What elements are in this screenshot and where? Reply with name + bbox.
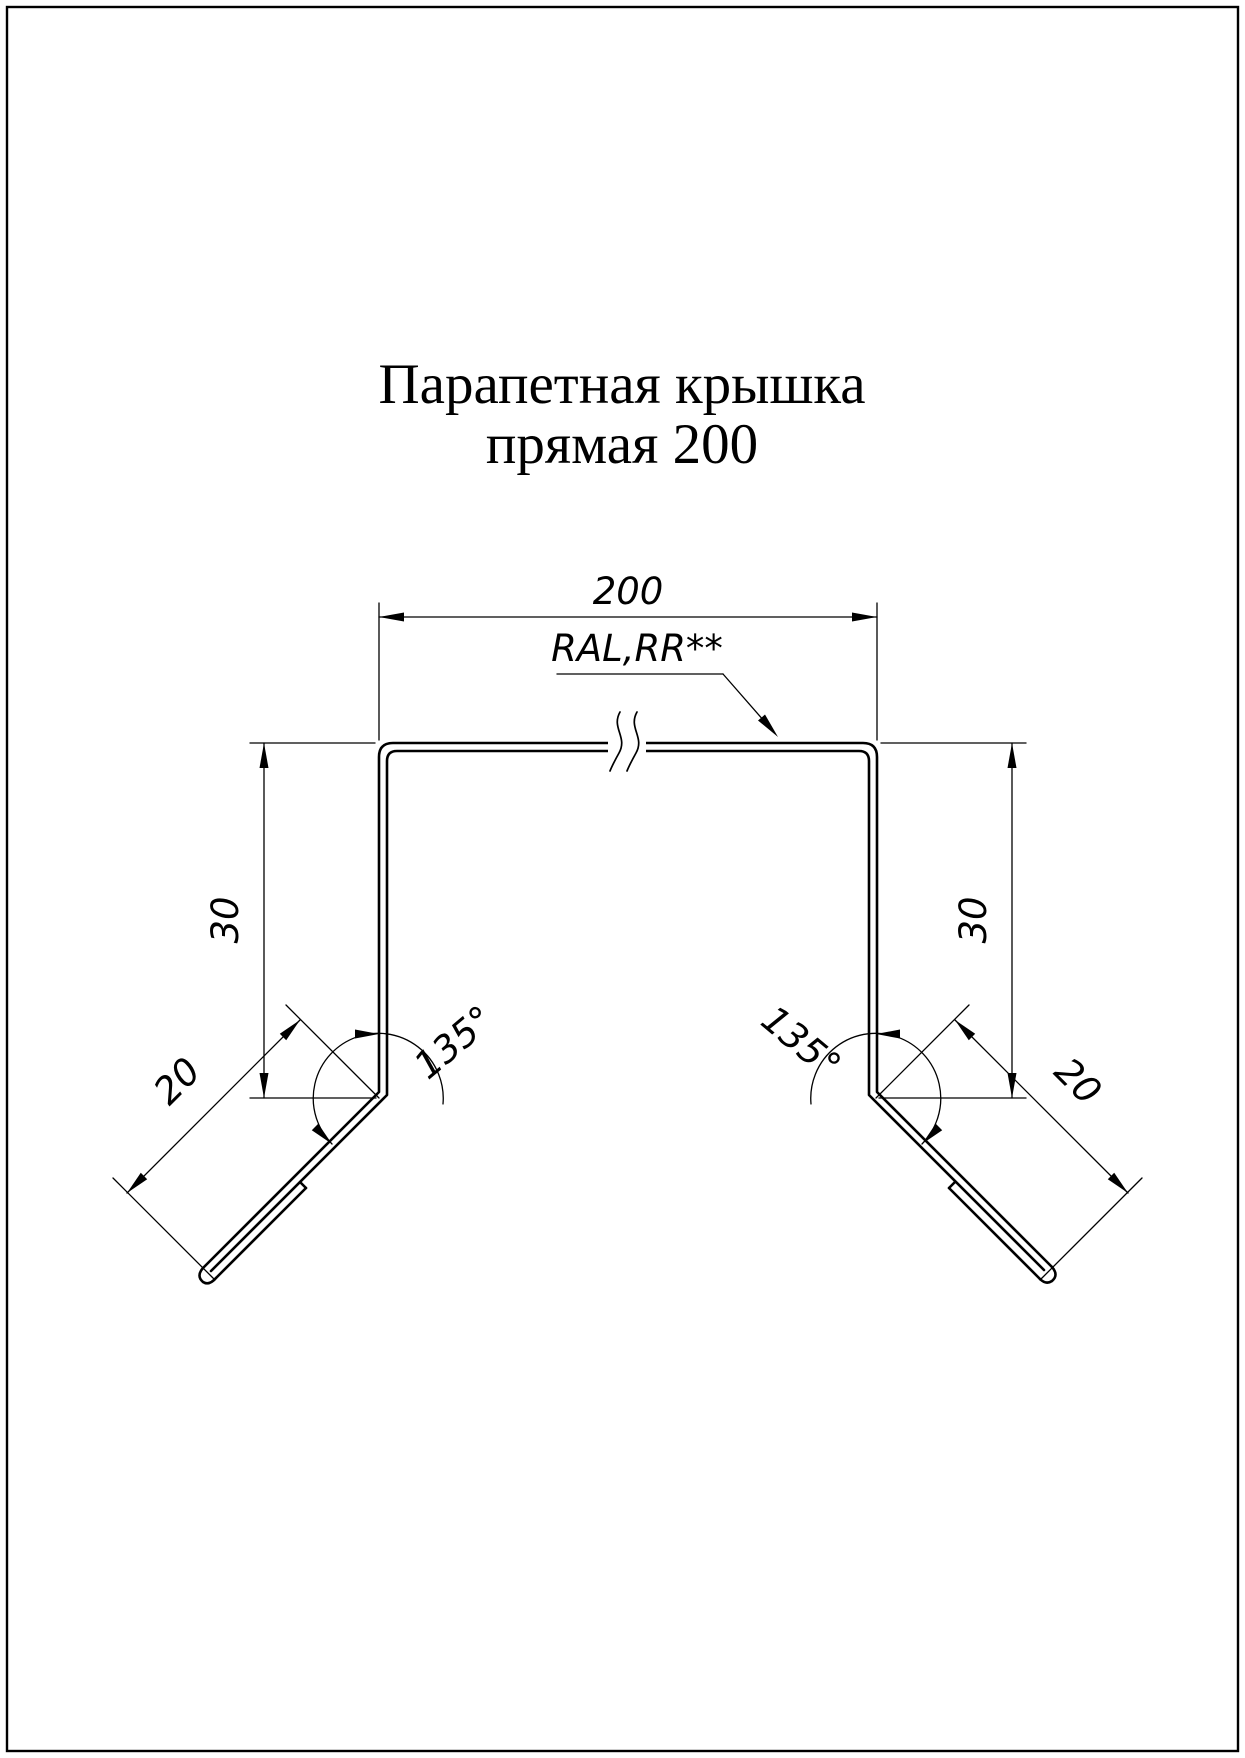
arc-arrowhead-icon xyxy=(922,1124,942,1144)
dimension-left-height: 30 xyxy=(204,743,376,1098)
extension-line xyxy=(113,1178,215,1280)
sheet-border xyxy=(7,7,1238,1751)
left-hem-line xyxy=(216,1188,306,1278)
coating-label: RAL,RR** xyxy=(551,627,723,670)
angle-right-bend: 135° xyxy=(753,997,942,1144)
drawing-sheet: Парапетная крышка прямая 200 200 RAL,RR*… xyxy=(0,0,1245,1758)
dimension-right-height: 30 xyxy=(879,743,1026,1098)
page-title-line2: прямая 200 xyxy=(486,413,758,476)
dimension-value-20-right: 20 xyxy=(1046,1049,1110,1113)
profile-outer-line xyxy=(203,743,1052,1268)
dimension-value-30-left: 30 xyxy=(204,896,247,943)
extension-line xyxy=(1040,1178,1142,1280)
arrowhead-up-icon xyxy=(1008,743,1017,768)
arc-arrowhead-icon xyxy=(355,1030,379,1039)
dimension-value-200: 200 xyxy=(593,570,664,613)
dimension-line xyxy=(127,1020,300,1193)
page-title-line1: Парапетная крышка xyxy=(378,353,865,416)
arrowhead-up-icon xyxy=(260,743,269,768)
dimension-value-30-right: 30 xyxy=(952,896,995,943)
angle-value-135-left: 135° xyxy=(406,997,502,1087)
dimension-value-20-left: 20 xyxy=(145,1049,209,1113)
coating-leader: RAL,RR** xyxy=(551,627,778,737)
angle-value-135-right: 135° xyxy=(753,997,849,1087)
break-symbol-gap xyxy=(608,736,646,757)
dimension-line xyxy=(955,1020,1128,1193)
arc-arrowhead-icon xyxy=(876,1030,900,1039)
extension-line xyxy=(876,1005,969,1098)
profile-inner-line xyxy=(211,751,1044,1271)
right-hem-line xyxy=(949,1188,1040,1279)
angle-left-bend: 135° xyxy=(312,997,502,1144)
arrowhead-down-icon xyxy=(260,1073,269,1098)
arc-arrowhead-icon xyxy=(312,1124,332,1144)
arrowhead-right-icon xyxy=(852,613,877,622)
arrowhead-left-icon xyxy=(379,613,404,622)
profile-cross-section xyxy=(200,712,1056,1283)
technical-drawing: Парапетная крышка прямая 200 200 RAL,RR*… xyxy=(0,0,1245,1758)
